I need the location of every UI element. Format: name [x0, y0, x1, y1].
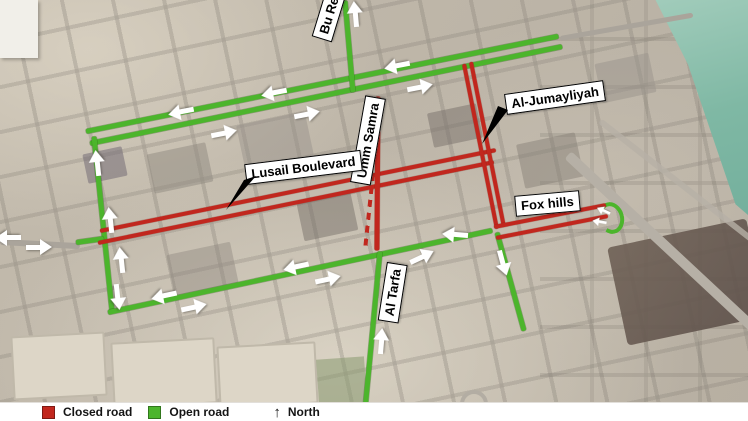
- closed-road-label: Closed road: [63, 405, 132, 419]
- north-label: North: [288, 405, 320, 419]
- label-tail: [226, 174, 260, 212]
- building-block: [216, 341, 318, 408]
- direction-arrow-icon: [23, 239, 53, 255]
- closed-road-swatch: [42, 406, 55, 419]
- open-road-swatch: [148, 406, 161, 419]
- open-road-label: Open road: [169, 405, 229, 419]
- direction-arrow-icon: [87, 148, 106, 180]
- direction-arrow-icon: [111, 245, 130, 277]
- direction-arrow-icon: [440, 226, 471, 245]
- building-block: [110, 337, 217, 408]
- direction-arrow-icon: [346, 0, 365, 31]
- direction-arrow-icon: [100, 205, 119, 237]
- building-block: [10, 332, 107, 401]
- direction-arrow-icon: [108, 280, 127, 312]
- direction-arrow-icon: [372, 326, 391, 357]
- legend-item-open: Open road: [148, 405, 229, 419]
- road-closure-map: Bu Redda Umm Samra Lusail Boulevard Al-J…: [0, 0, 748, 421]
- legend-item-closed: Closed road: [42, 405, 132, 419]
- direction-arrow-icon: [0, 230, 24, 246]
- legend: Closed road Open road ↑ North: [0, 402, 748, 421]
- label-tail: [482, 106, 512, 146]
- legend-item-north: ↑ North: [273, 404, 320, 421]
- white-building: [0, 0, 38, 58]
- north-arrow-icon: ↑: [273, 404, 281, 421]
